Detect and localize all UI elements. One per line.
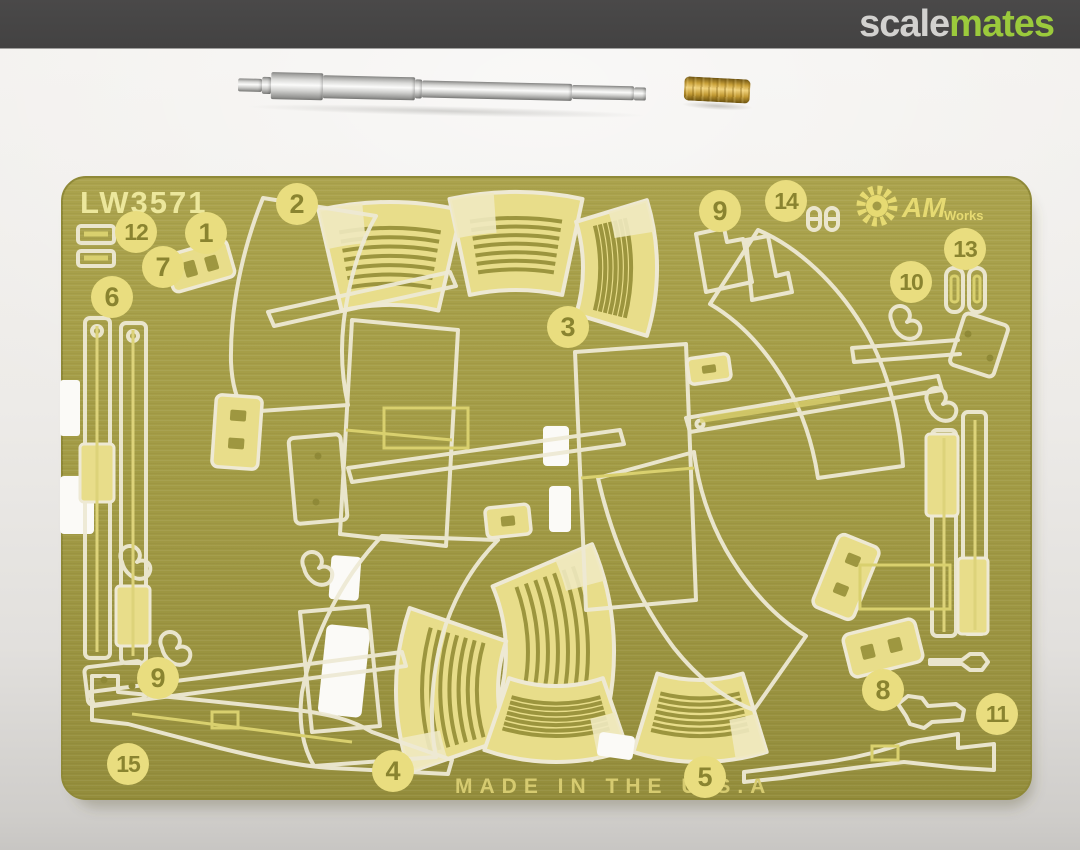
svg-text:12: 12 — [124, 219, 148, 245]
part-marker-3: 3 — [547, 306, 589, 348]
svg-text:13: 13 — [953, 236, 977, 262]
part-marker-7: 7 — [142, 246, 184, 288]
svg-text:14: 14 — [774, 188, 799, 214]
part-marker-6: 6 — [91, 276, 133, 318]
svg-text:10: 10 — [899, 269, 923, 295]
brand-main-text: AM — [901, 192, 946, 223]
part-marker-5: 5 — [684, 756, 726, 798]
svg-text:5: 5 — [697, 762, 712, 792]
svg-text:4: 4 — [385, 756, 400, 786]
part-marker-15: 15 — [107, 743, 149, 785]
svg-text:9: 9 — [150, 663, 165, 693]
part-marker-9-bottom: 9 — [137, 657, 179, 699]
part-marker-8: 8 — [862, 669, 904, 711]
svg-text:7: 7 — [155, 252, 170, 282]
part-marker-13: 13 — [944, 228, 986, 270]
svg-text:2: 2 — [289, 189, 304, 219]
svg-text:6: 6 — [104, 282, 119, 312]
photo-background: LW3571 MADE IN THE U.S.A AM Works 1 2 3 … — [0, 0, 1080, 850]
part-marker-4: 4 — [372, 750, 414, 792]
svg-text:15: 15 — [116, 751, 141, 777]
svg-text:8: 8 — [875, 675, 890, 705]
part-marker-14: 14 — [765, 180, 807, 222]
product-photo-page: LW3571 MADE IN THE U.S.A AM Works 1 2 3 … — [0, 0, 1080, 850]
svg-text:11: 11 — [986, 701, 1010, 727]
part-marker-2: 2 — [276, 183, 318, 225]
brand-sub-text: Works — [944, 208, 984, 223]
part-marker-1: 1 — [185, 212, 227, 254]
photo-etch-fret: LW3571 MADE IN THE U.S.A AM Works 1 2 3 … — [0, 0, 1080, 850]
part-marker-11: 11 — [976, 693, 1018, 735]
logo-part-mates: mates — [949, 3, 1054, 45]
site-header: scalemates — [0, 0, 1080, 48]
svg-text:3: 3 — [560, 312, 575, 342]
scalemates-logo[interactable]: scalemates — [859, 1, 1054, 47]
svg-text:9: 9 — [712, 196, 727, 226]
svg-text:1: 1 — [198, 218, 213, 248]
part-marker-12: 12 — [115, 211, 157, 253]
logo-part-scale: scale — [859, 3, 949, 45]
part-marker-9-top: 9 — [699, 190, 741, 232]
part-marker-10: 10 — [890, 261, 932, 303]
